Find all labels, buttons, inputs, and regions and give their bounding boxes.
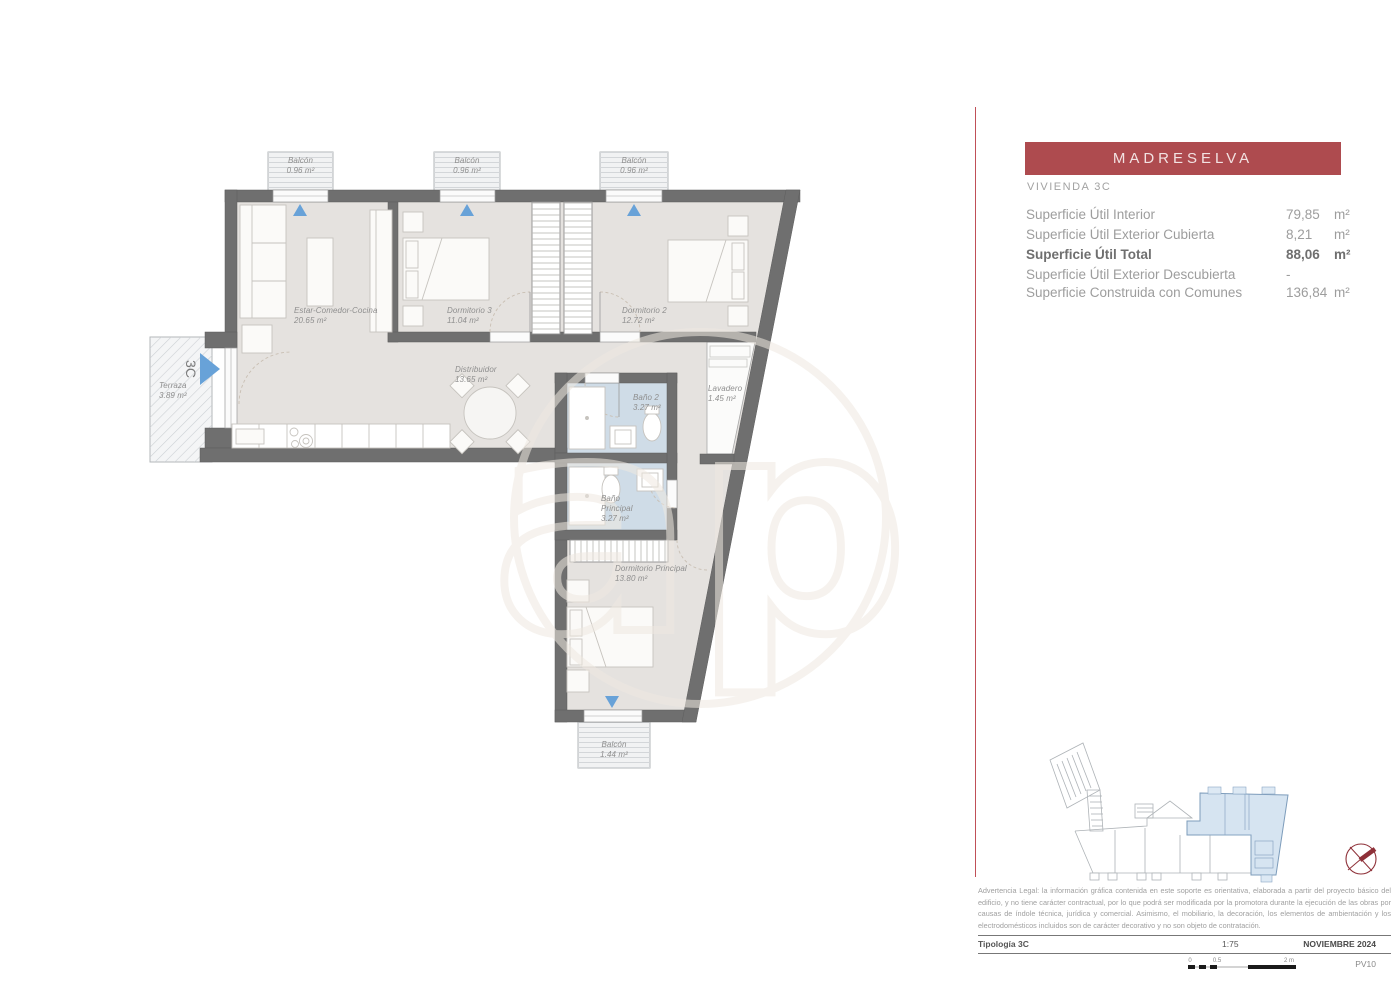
room-label-living: Estar-Comedor-Cocina20.65 m² bbox=[294, 306, 378, 326]
room-label-terrace: Terraza3.89 m² bbox=[159, 381, 187, 401]
toilet bbox=[643, 413, 661, 441]
site-plan-unit-highlight bbox=[1187, 787, 1288, 882]
kitchen-sink bbox=[236, 429, 264, 444]
entrance-unit-label: 3C bbox=[183, 360, 199, 378]
room-label-bedroom-3: Dormitorio 311.04 m² bbox=[447, 306, 492, 326]
surface-row-total: Superficie Útil Total 88,06 m² bbox=[1026, 247, 1376, 267]
room-label-bedroom-main: Dormitorio Principal13.80 m² bbox=[615, 564, 687, 584]
sofa bbox=[240, 205, 286, 318]
room-label-balcony-bottom: Balcón1.44 m² bbox=[578, 740, 650, 760]
north-arrow-icon bbox=[1337, 835, 1385, 883]
dining-table bbox=[464, 387, 516, 439]
room-label-bathroom-main: BañoPrincipal3.27 m² bbox=[601, 494, 633, 524]
room-label-laundry: Lavadero1.45 m² bbox=[708, 384, 742, 404]
scale-bar: 0 0.5 2 m bbox=[1186, 956, 1302, 972]
nightstand bbox=[567, 580, 589, 602]
drawing-scale: 1:75 bbox=[1222, 939, 1239, 949]
room-label-balcony-2: Balcón0.96 m² bbox=[434, 156, 500, 176]
side-table bbox=[242, 325, 272, 353]
surface-row: Superficie Útil Interior 79,85 m² bbox=[1026, 207, 1376, 227]
wardrobe-main-bedroom bbox=[570, 540, 668, 562]
room-label-balcony-1: Balcón0.96 m² bbox=[268, 156, 333, 176]
nightstand bbox=[403, 212, 423, 232]
washbasin bbox=[610, 426, 636, 448]
nightstand bbox=[728, 216, 748, 236]
nightstand bbox=[403, 306, 423, 326]
room-label-balcony-3: Balcón0.96 m² bbox=[600, 156, 668, 176]
footer-rule bbox=[978, 935, 1391, 936]
svg-text:2 m: 2 m bbox=[1284, 958, 1294, 964]
plan-code: PV10 bbox=[1336, 959, 1376, 969]
unit-subtitle: VIVIENDA 3C bbox=[1027, 181, 1111, 193]
coffee-table bbox=[307, 238, 333, 306]
nightstand bbox=[567, 670, 589, 692]
project-banner: MADRESELVA bbox=[1025, 142, 1341, 175]
floor-plan-drawing: 3C bbox=[140, 140, 820, 780]
surface-row: Superficie Construida con Comunes 136,84… bbox=[1026, 285, 1376, 305]
panel-divider-line bbox=[975, 107, 976, 877]
drawing-date: NOVIEMBRE 2024 bbox=[1276, 939, 1376, 949]
surface-row: Superficie Útil Exterior Cubierta 8,21 m… bbox=[1026, 227, 1376, 247]
washbasin bbox=[637, 469, 663, 491]
project-title: MADRESELVA bbox=[1113, 150, 1253, 167]
room-label-hall: Distribuidor13.65 m² bbox=[455, 365, 497, 385]
nightstand bbox=[728, 306, 748, 326]
kitchen-counter bbox=[232, 424, 450, 448]
typology-label: Tipología 3C bbox=[978, 939, 1029, 949]
legal-disclaimer: Advertencia Legal: la información gráfic… bbox=[978, 885, 1391, 931]
svg-text:0: 0 bbox=[1188, 958, 1192, 964]
site-plan bbox=[1040, 738, 1310, 886]
svg-text:0.5: 0.5 bbox=[1213, 958, 1222, 964]
floorplan-sheet: 3C ap Balcón0.96 m² Balcón0.96 m² Balcón… bbox=[0, 0, 1400, 990]
floor-plan: 3C bbox=[140, 140, 820, 780]
surface-row: Superficie Útil Exterior Descubierta - bbox=[1026, 267, 1376, 287]
room-label-bathroom-2: Baño 23.27 m² bbox=[633, 393, 661, 413]
footer-rule bbox=[978, 953, 1391, 954]
room-label-bedroom-2: Dormitorio 212.72 m² bbox=[622, 306, 667, 326]
